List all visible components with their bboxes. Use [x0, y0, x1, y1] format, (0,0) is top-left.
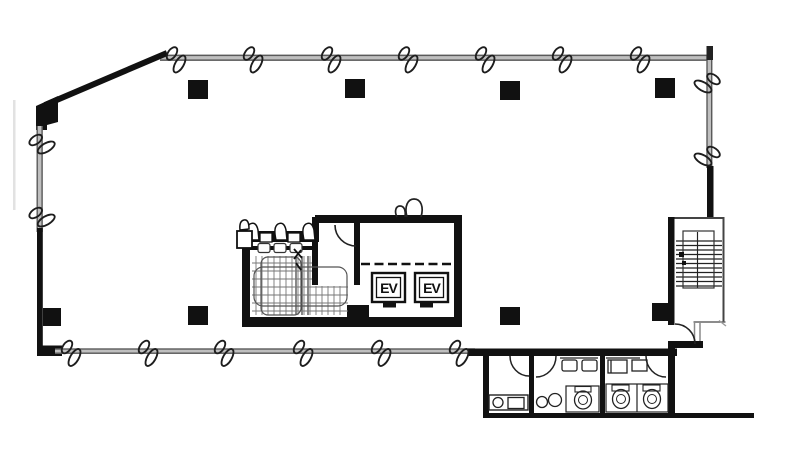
svg-text:EV: EV	[380, 280, 398, 296]
svg-text:EV: EV	[423, 280, 441, 296]
